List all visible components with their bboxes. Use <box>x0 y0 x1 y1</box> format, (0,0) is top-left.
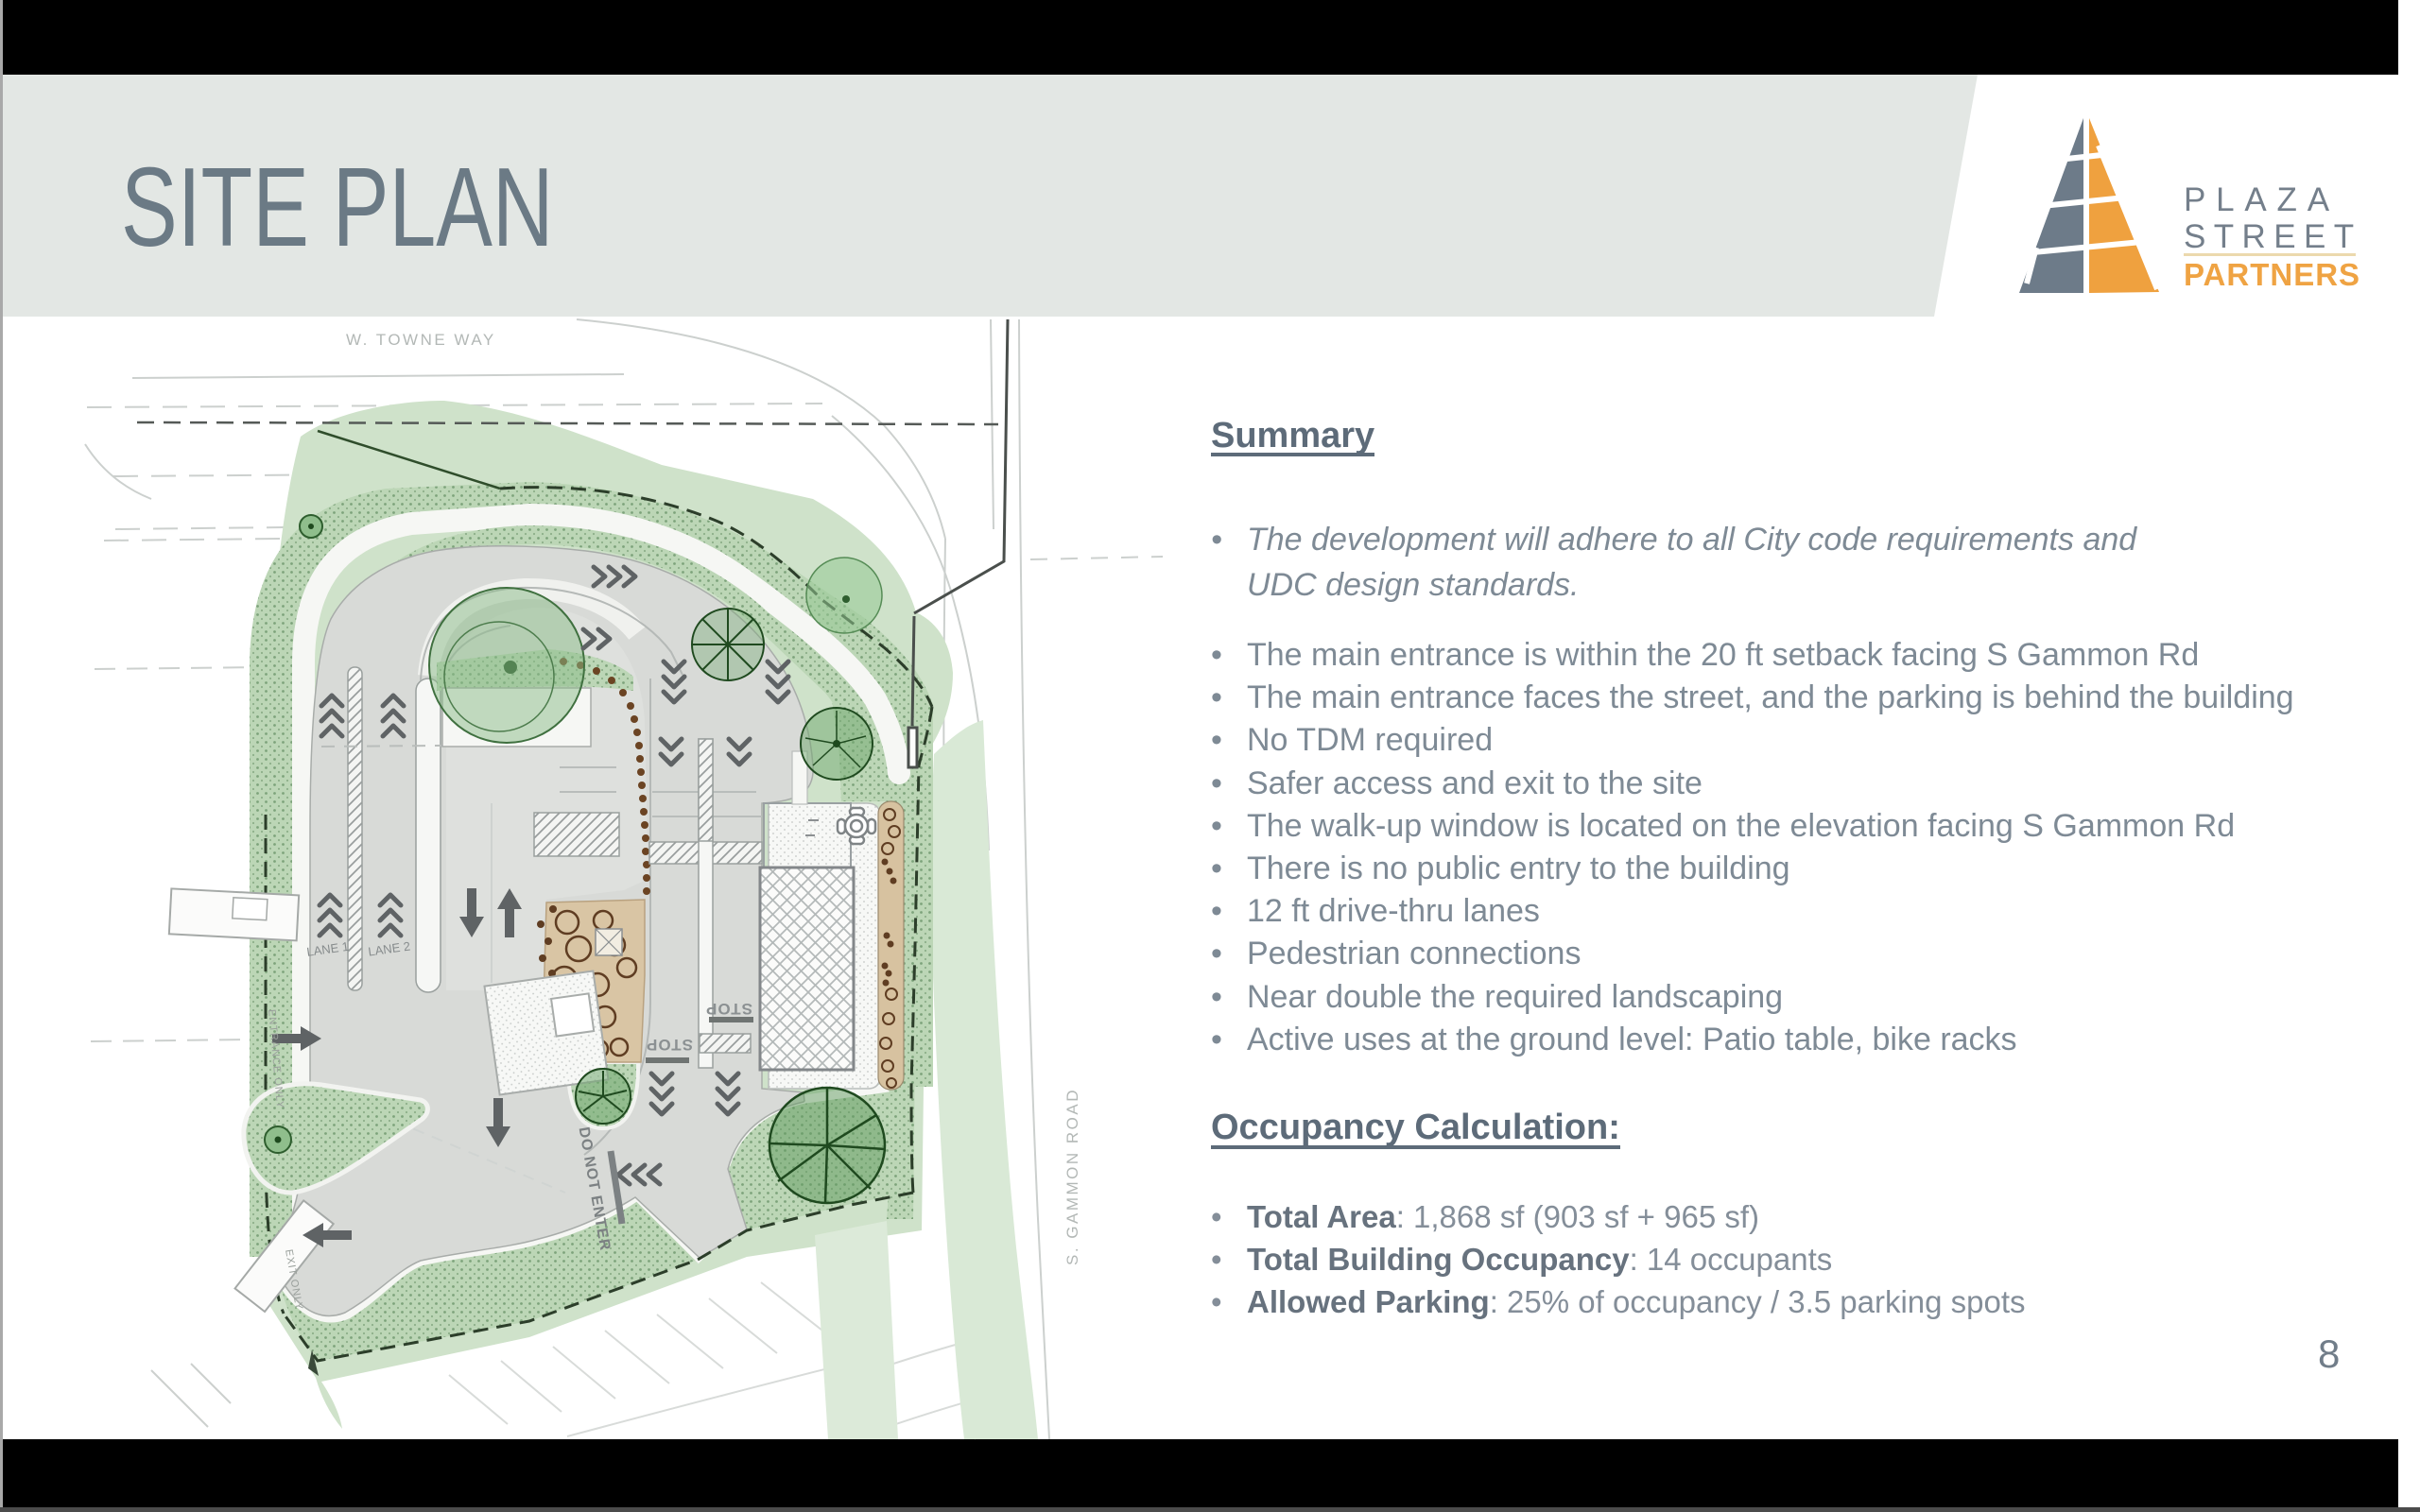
svg-text:STOP: STOP <box>705 1000 752 1018</box>
svg-text:W. TOWNE WAY: W. TOWNE WAY <box>346 331 496 349</box>
svg-text:S. GAMMON ROAD: S. GAMMON ROAD <box>1063 1088 1081 1265</box>
svg-text:STOP: STOP <box>646 1036 693 1054</box>
